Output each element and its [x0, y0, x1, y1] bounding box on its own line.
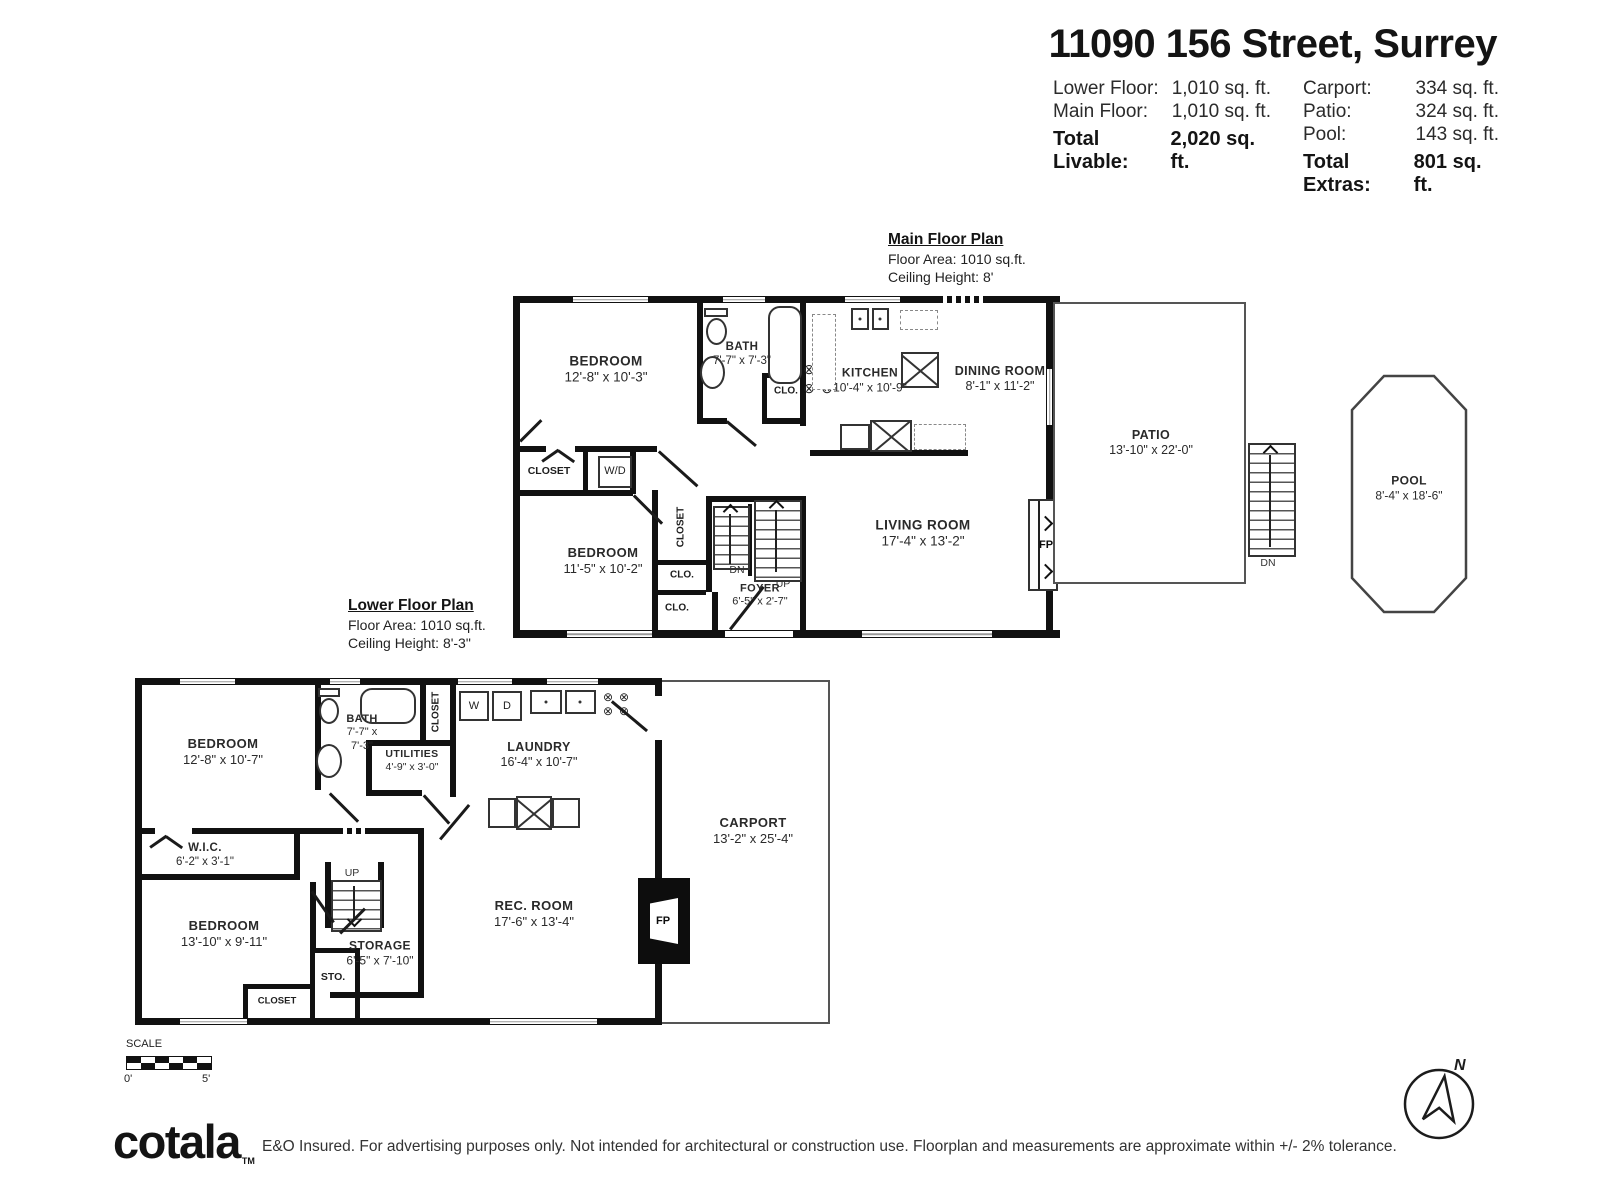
plan-area: Floor Area: 1010 sq.ft. — [348, 617, 486, 633]
room-label-bath: BATH7'-7" x7'-3" — [346, 713, 377, 753]
compass-icon: N — [1396, 1048, 1486, 1148]
counter-dashed — [900, 310, 938, 330]
room-name: BEDROOM — [181, 918, 267, 934]
trademark-label: TM — [242, 1156, 255, 1166]
plan-area: Floor Area: 1010 sq.ft. — [888, 251, 1026, 267]
closet-label: CLO. — [774, 386, 798, 397]
stat-value: 1,010 sq. ft. — [1172, 101, 1271, 123]
bathroom-sink — [316, 744, 342, 778]
wall — [697, 296, 703, 418]
wall — [366, 790, 422, 796]
wall — [513, 296, 520, 638]
window — [723, 297, 765, 302]
room-dims: 10'-4" x 10'-9" — [833, 380, 907, 395]
wall — [368, 828, 424, 834]
stove-burner-icon: ⊗ — [603, 704, 613, 718]
stat-label: Patio: — [1303, 101, 1352, 123]
patio-stairs-dn-label: DN — [1260, 557, 1275, 569]
patio-stairs — [1248, 443, 1296, 557]
washer-dryer-label: W/D — [604, 465, 625, 477]
patio-slider-door — [1047, 369, 1052, 425]
stairs-up-label: UP — [345, 867, 360, 879]
hatched-wall — [338, 828, 368, 834]
room-name: STORAGE — [346, 938, 413, 953]
bifold-door — [557, 449, 575, 463]
stat-total-row: Total Extras:801 sq. ft. — [1303, 151, 1499, 174]
lower-floor-heading: Lower Floor Plan Floor Area: 1010 sq.ft.… — [348, 597, 486, 651]
plan-title: Lower Floor Plan — [348, 597, 486, 615]
stat-row: Pool:143 sq. ft. — [1303, 124, 1499, 147]
stat-row: Lower Floor:1,010 sq. ft. — [1053, 78, 1271, 101]
fireplace-label: FP — [1039, 539, 1053, 551]
room-label-storage: STORAGE6'-5" x 7'-10" — [346, 938, 413, 967]
toilet — [319, 698, 339, 724]
window — [180, 679, 235, 684]
cotala-logo: cotalaTM — [113, 1114, 253, 1169]
room-dims: 17'-4" x 13'-2" — [875, 534, 970, 550]
room-dims: 16'-4" x 10'-7" — [501, 755, 578, 770]
counter-dashed — [914, 424, 966, 450]
wall — [583, 452, 588, 494]
stat-row: Carport:334 sq. ft. — [1303, 78, 1499, 101]
wall — [330, 992, 424, 998]
door-swing — [439, 804, 470, 840]
room-name: PATIO — [1109, 428, 1193, 443]
wall — [372, 740, 456, 746]
room-dims: 7'-7" x 7'-3" — [713, 354, 771, 368]
wall — [658, 590, 706, 595]
island — [516, 796, 552, 830]
room-name: LIVING ROOM — [875, 518, 970, 534]
door-swing — [658, 450, 698, 487]
scale-bar — [126, 1056, 212, 1070]
logo-text: cotala — [113, 1115, 240, 1168]
room-label-wic: W.I.C.6'-2" x 3'-1" — [176, 841, 234, 869]
counter — [840, 424, 870, 450]
plan-ceiling: Ceiling Height: 8'-3" — [348, 635, 486, 651]
scale-label: SCALE — [126, 1038, 162, 1050]
wall — [712, 592, 718, 638]
sink-basin — [530, 690, 562, 714]
stat-total-row: Total Livable:2,020 sq. ft. — [1053, 128, 1271, 151]
bathtub — [768, 306, 802, 384]
room-name: BEDROOM — [564, 354, 647, 370]
wall — [135, 874, 300, 880]
room-name: DINING ROOM — [955, 364, 1046, 379]
stat-value: 324 sq. ft. — [1416, 101, 1499, 123]
toilet — [704, 308, 728, 317]
room-label-kitchen: KITCHEN10'-4" x 10'-9" — [833, 365, 907, 394]
stat-label: Main Floor: — [1053, 101, 1148, 123]
room-name: BEDROOM — [183, 736, 263, 752]
room-name: UTILITIES — [385, 748, 438, 761]
room-dims: 13'-2" x 25'-4" — [713, 831, 793, 847]
wall — [697, 418, 727, 424]
room-dims: 4'-9" x 3'-0" — [385, 761, 438, 774]
stat-row: Main Floor:1,010 sq. ft. — [1053, 101, 1271, 124]
room-label-dining: DINING ROOM8'-1" x 11'-2" — [955, 364, 1046, 395]
scale-zero-label: 0' — [124, 1073, 132, 1085]
extras-stats: Carport:334 sq. ft. Patio:324 sq. ft. Po… — [1303, 78, 1499, 174]
entry-door-gap — [725, 631, 793, 637]
counter — [552, 798, 580, 828]
disclaimer-text: E&O Insured. For advertising purposes on… — [262, 1138, 1397, 1156]
washer-label: W — [469, 700, 479, 712]
wall — [513, 490, 633, 496]
room-name: BEDROOM — [564, 545, 643, 561]
room-label-rec-room: REC. ROOM17'-6" x 13'-4" — [494, 898, 574, 930]
stairs-up-label: UP — [776, 578, 791, 590]
room-label-living: LIVING ROOM17'-4" x 13'-2" — [875, 518, 970, 551]
room-label-laundry: LAUNDRY16'-4" x 10'-7" — [501, 740, 578, 771]
window — [180, 1019, 247, 1024]
compass-n-label: N — [1454, 1057, 1466, 1074]
scale-five-label: 5' — [202, 1073, 210, 1085]
wall — [762, 373, 767, 424]
kitchen-sink — [851, 308, 889, 330]
wall — [658, 560, 706, 565]
room-name: W.I.C. — [176, 841, 234, 855]
plan-ceiling: Ceiling Height: 8' — [888, 269, 1026, 285]
window — [458, 679, 512, 684]
room-dims: 7'-3" — [346, 740, 377, 753]
room-name: KITCHEN — [833, 365, 907, 380]
plan-title: Main Floor Plan — [888, 231, 1026, 249]
closet-label: CLOSET — [528, 465, 571, 477]
room-label-bedroom: BEDROOM12'-8" x 10'-7" — [183, 736, 263, 768]
room-label-bedroom: BEDROOM12'-8" x 10'-3" — [564, 354, 647, 387]
room-label-carport: CARPORT13'-2" x 25'-4" — [713, 815, 793, 847]
page-title: 11090 156 Street, Surrey — [900, 22, 1497, 67]
closet-label: CLOSET — [431, 692, 442, 733]
wall — [310, 948, 315, 1018]
room-dims: 8'-1" x 11'-2" — [955, 379, 1046, 394]
closet-label: CLO. — [670, 570, 694, 581]
sink-basin — [872, 308, 890, 330]
room-dims: 13'-10" x 9'-11" — [181, 934, 267, 950]
storage-label: STO. — [321, 971, 345, 983]
floor-plan-page: { "header": { "title": "11090 156 Street… — [0, 0, 1600, 1200]
door-swing — [519, 419, 542, 442]
window — [490, 1019, 597, 1024]
stat-row: Patio:324 sq. ft. — [1303, 101, 1499, 124]
stat-label: Pool: — [1303, 124, 1346, 146]
kitchen-island — [870, 420, 912, 452]
room-dims: 8'-4" x 18'-6" — [1375, 488, 1442, 503]
laundry-sink — [530, 690, 596, 714]
room-label-bath: BATH7'-7" x 7'-3" — [713, 340, 771, 368]
stat-value: 1,010 sq. ft. — [1172, 78, 1271, 100]
wall — [762, 418, 806, 424]
window — [845, 297, 900, 302]
hatched-landing — [938, 296, 984, 303]
room-dims: 6'-5" x 7'-10" — [346, 953, 413, 968]
room-label-pool: POOL8'-4" x 18'-6" — [1375, 473, 1442, 502]
room-dims: 11'-5" x 10'-2" — [564, 561, 643, 577]
wall — [706, 496, 712, 592]
wall — [192, 828, 338, 834]
stat-value: 334 sq. ft. — [1416, 78, 1499, 100]
door-swing — [633, 494, 663, 524]
closet-label: CLO. — [665, 603, 689, 614]
fireplace-label: FP — [656, 915, 670, 927]
wall — [513, 446, 546, 452]
stove-burner-icon: ⊗ — [619, 690, 629, 704]
stairs-dn-label: DN — [729, 564, 744, 576]
door-swing — [726, 420, 757, 446]
carport-outline — [662, 680, 830, 1024]
room-name: LAUNDRY — [501, 740, 578, 755]
window — [547, 679, 598, 684]
window — [567, 631, 652, 637]
window — [573, 297, 648, 302]
room-dims: 12'-8" x 10'-3" — [564, 370, 647, 386]
wall — [243, 984, 313, 989]
stat-value: 801 sq. ft. — [1414, 151, 1499, 197]
wall — [418, 828, 424, 998]
door-swing — [423, 794, 450, 824]
room-label-bedroom2: BEDROOM11'-5" x 10'-2" — [564, 545, 643, 577]
wall — [135, 828, 155, 834]
main-floor-heading: Main Floor Plan Floor Area: 1010 sq.ft. … — [888, 231, 1026, 285]
stat-label: Total Livable: — [1053, 128, 1171, 174]
toilet — [318, 688, 340, 697]
closet-label: CLOSET — [258, 996, 297, 1007]
room-name: POOL — [1375, 473, 1442, 488]
window — [330, 679, 360, 684]
wall — [420, 685, 426, 743]
room-name: REC. ROOM — [494, 898, 574, 914]
room-dims: 17'-6" x 13'-4" — [494, 914, 574, 930]
livable-stats: Lower Floor:1,010 sq. ft. Main Floor:1,0… — [1053, 78, 1271, 151]
room-name: CARPORT — [713, 815, 793, 831]
wall — [135, 678, 142, 1025]
carport-door-gap — [655, 696, 662, 740]
room-name: BATH — [713, 340, 771, 354]
window — [862, 631, 992, 637]
sink-basin — [565, 690, 597, 714]
room-dims: 6'-5" x 2'-7" — [732, 596, 787, 609]
room-dims: 12'-8" x 10'-7" — [183, 752, 263, 768]
sink-basin — [851, 308, 869, 330]
stat-label: Carport: — [1303, 78, 1372, 100]
stairs-arrow — [1269, 455, 1271, 547]
stat-label: Lower Floor: — [1053, 78, 1159, 100]
stat-value: 2,020 sq. ft. — [1171, 128, 1271, 174]
stat-label: Total Extras: — [1303, 151, 1414, 197]
counter — [488, 798, 516, 828]
door-swing — [329, 792, 359, 822]
dryer-label: D — [503, 700, 511, 712]
room-label-bedroom2: BEDROOM13'-10" x 9'-11" — [181, 918, 267, 950]
room-dims: 13'-10" x 22'-0" — [1109, 443, 1193, 458]
room-label-utilities: UTILITIES4'-9" x 3'-0" — [385, 748, 438, 774]
stairs-arrow — [729, 514, 731, 564]
closet-label: CLOSET — [676, 507, 687, 548]
room-dims: 7'-7" x — [346, 726, 377, 739]
wall — [243, 984, 248, 1018]
scale-bar-row — [127, 1063, 211, 1069]
room-name: BATH — [346, 713, 377, 726]
room-dims: 6'-2" x 3'-1" — [176, 855, 234, 869]
room-label-patio: PATIO13'-10" x 22'-0" — [1109, 428, 1193, 459]
stat-value: 143 sq. ft. — [1416, 124, 1499, 146]
stairs-arrow — [775, 510, 777, 572]
